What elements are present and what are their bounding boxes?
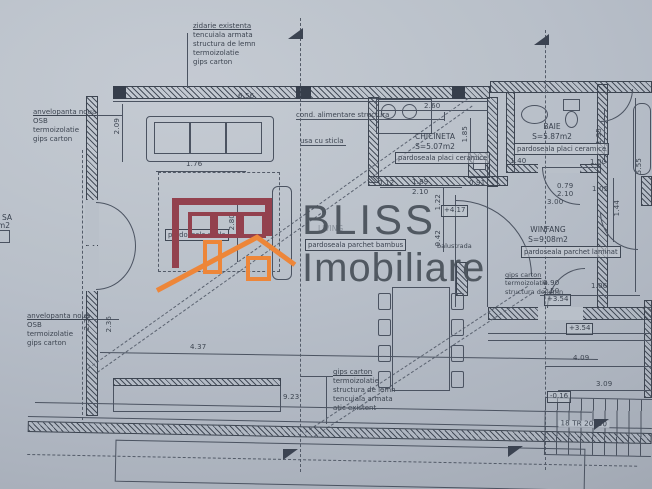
watermark-window [214, 212, 240, 238]
door-arc [600, 89, 633, 122]
line [488, 340, 652, 341]
dimension-line [100, 352, 598, 360]
level-marker: +3.54 [544, 294, 571, 306]
dimension-label: 3.00 [547, 199, 563, 206]
dimension-label: 2.10 [557, 191, 573, 198]
dimension-label: 0.91 [469, 180, 485, 187]
watermark-window [240, 212, 266, 238]
note-left-upper: anvelopanta noua OSB termoizolatie gips … [33, 108, 96, 144]
room-label-baie: BAIE S=5.87m2 [522, 122, 582, 142]
dimension-label: 4.37 [190, 344, 206, 351]
section-flag-icon [288, 28, 303, 39]
dimension-label: 1.89 [412, 179, 428, 186]
watermark-roof-window [246, 256, 271, 281]
dimension-label: 5.55 [636, 158, 643, 174]
watermark-building-left [172, 198, 179, 268]
dimension-label: 9.23 [283, 394, 299, 401]
dimension-label: 2.10 [412, 189, 428, 196]
watermark-building-top [172, 198, 272, 205]
dimension-label: 1.44 [614, 200, 621, 216]
dimension-label: 1.76 [186, 161, 202, 168]
section-line [300, 18, 301, 472]
chair [378, 319, 391, 336]
dimension-label: 2.30 [84, 314, 91, 330]
dimension-label: 3.09 [596, 381, 612, 388]
watermark-building-right [265, 198, 272, 236]
terrace-wall [113, 378, 281, 386]
toilet-tank [563, 99, 580, 111]
dining-table [392, 287, 450, 391]
room-label-winfang: WINFANG S=9.08m2 [513, 225, 583, 245]
dimension-line [545, 366, 652, 367]
chair [378, 345, 391, 362]
dimension-label: 0.90 [543, 280, 559, 287]
wall-stairs-right [644, 300, 652, 398]
dimension-label: 2.60 [424, 103, 440, 110]
legend-box-partial [0, 230, 10, 243]
section-flag-icon [594, 419, 609, 430]
dimension-label: 4.09 [573, 355, 589, 362]
dimension-line [122, 104, 123, 162]
dimension-label: 1.85 [462, 126, 469, 142]
section-flag-icon [508, 446, 523, 457]
chair [451, 319, 464, 336]
note-duct: cond. alimentare structura [296, 111, 389, 120]
section-flag-icon [283, 449, 298, 460]
hob [402, 104, 417, 119]
column [296, 86, 311, 99]
dimension-label: 1.05 [592, 186, 608, 193]
brand-text-top: BLISS [302, 196, 436, 244]
chair [451, 345, 464, 362]
level-marker: -0.16 [547, 391, 571, 403]
dimension-label: 0.79 [557, 183, 573, 190]
chair [451, 293, 464, 310]
level-marker: +3.54 [566, 323, 593, 335]
dimension-label: 1.95 [596, 128, 603, 144]
section-flag-icon [534, 34, 549, 45]
sofa-cushion [190, 122, 226, 154]
brand-text-bottom: Imobiliare [302, 246, 485, 291]
dimension-label: 6.56 [238, 93, 254, 100]
dimension-label: 0.12 [378, 180, 394, 187]
dimension-label: 1.40 [510, 158, 526, 165]
floor-label-chicineta: pardoseala placi ceramice [395, 152, 490, 164]
chair [378, 293, 391, 310]
dimension-label: 2.50 [543, 288, 559, 295]
dimension-label: 1.06 [591, 283, 607, 290]
sofa-cushion [154, 122, 190, 154]
dimension-label: 1.00 [590, 159, 606, 166]
level-marker: +4.17 [441, 205, 468, 217]
dimension-line [558, 390, 652, 391]
wall-right-block [641, 176, 652, 206]
floor-label-baie: pardoseala placi ceramice [514, 143, 609, 155]
column [113, 86, 126, 99]
note-top-wall: zidarie existenta tencuiala armata struc… [193, 22, 256, 67]
sofa-cushion [226, 122, 262, 154]
room-label-chicineta: CHICINETA S=5.07m2 [400, 132, 470, 152]
floor-plan-photo: 18 TR 20x30 zidarie existenta tencuiala … [0, 0, 652, 489]
note-left-lower: anvelopanta noua OSB termoizolatie gips … [27, 312, 90, 348]
watermark-window [188, 212, 214, 238]
leader-line [300, 376, 333, 377]
dashed-line [82, 150, 83, 420]
note-bottom-wall: gips carton termoizolatie structura de l… [333, 368, 396, 413]
column [452, 86, 465, 99]
leader-line [187, 33, 188, 88]
dimension-label: 2.36 [106, 316, 113, 332]
door-arc [96, 202, 136, 246]
door-arc [96, 246, 136, 290]
note-glass-door: usa cu sticla [300, 137, 344, 146]
dimension-label: 2.09 [114, 118, 121, 134]
floor-label-winfang: pardoseala parchet laminat [521, 246, 621, 258]
chair [451, 371, 464, 388]
